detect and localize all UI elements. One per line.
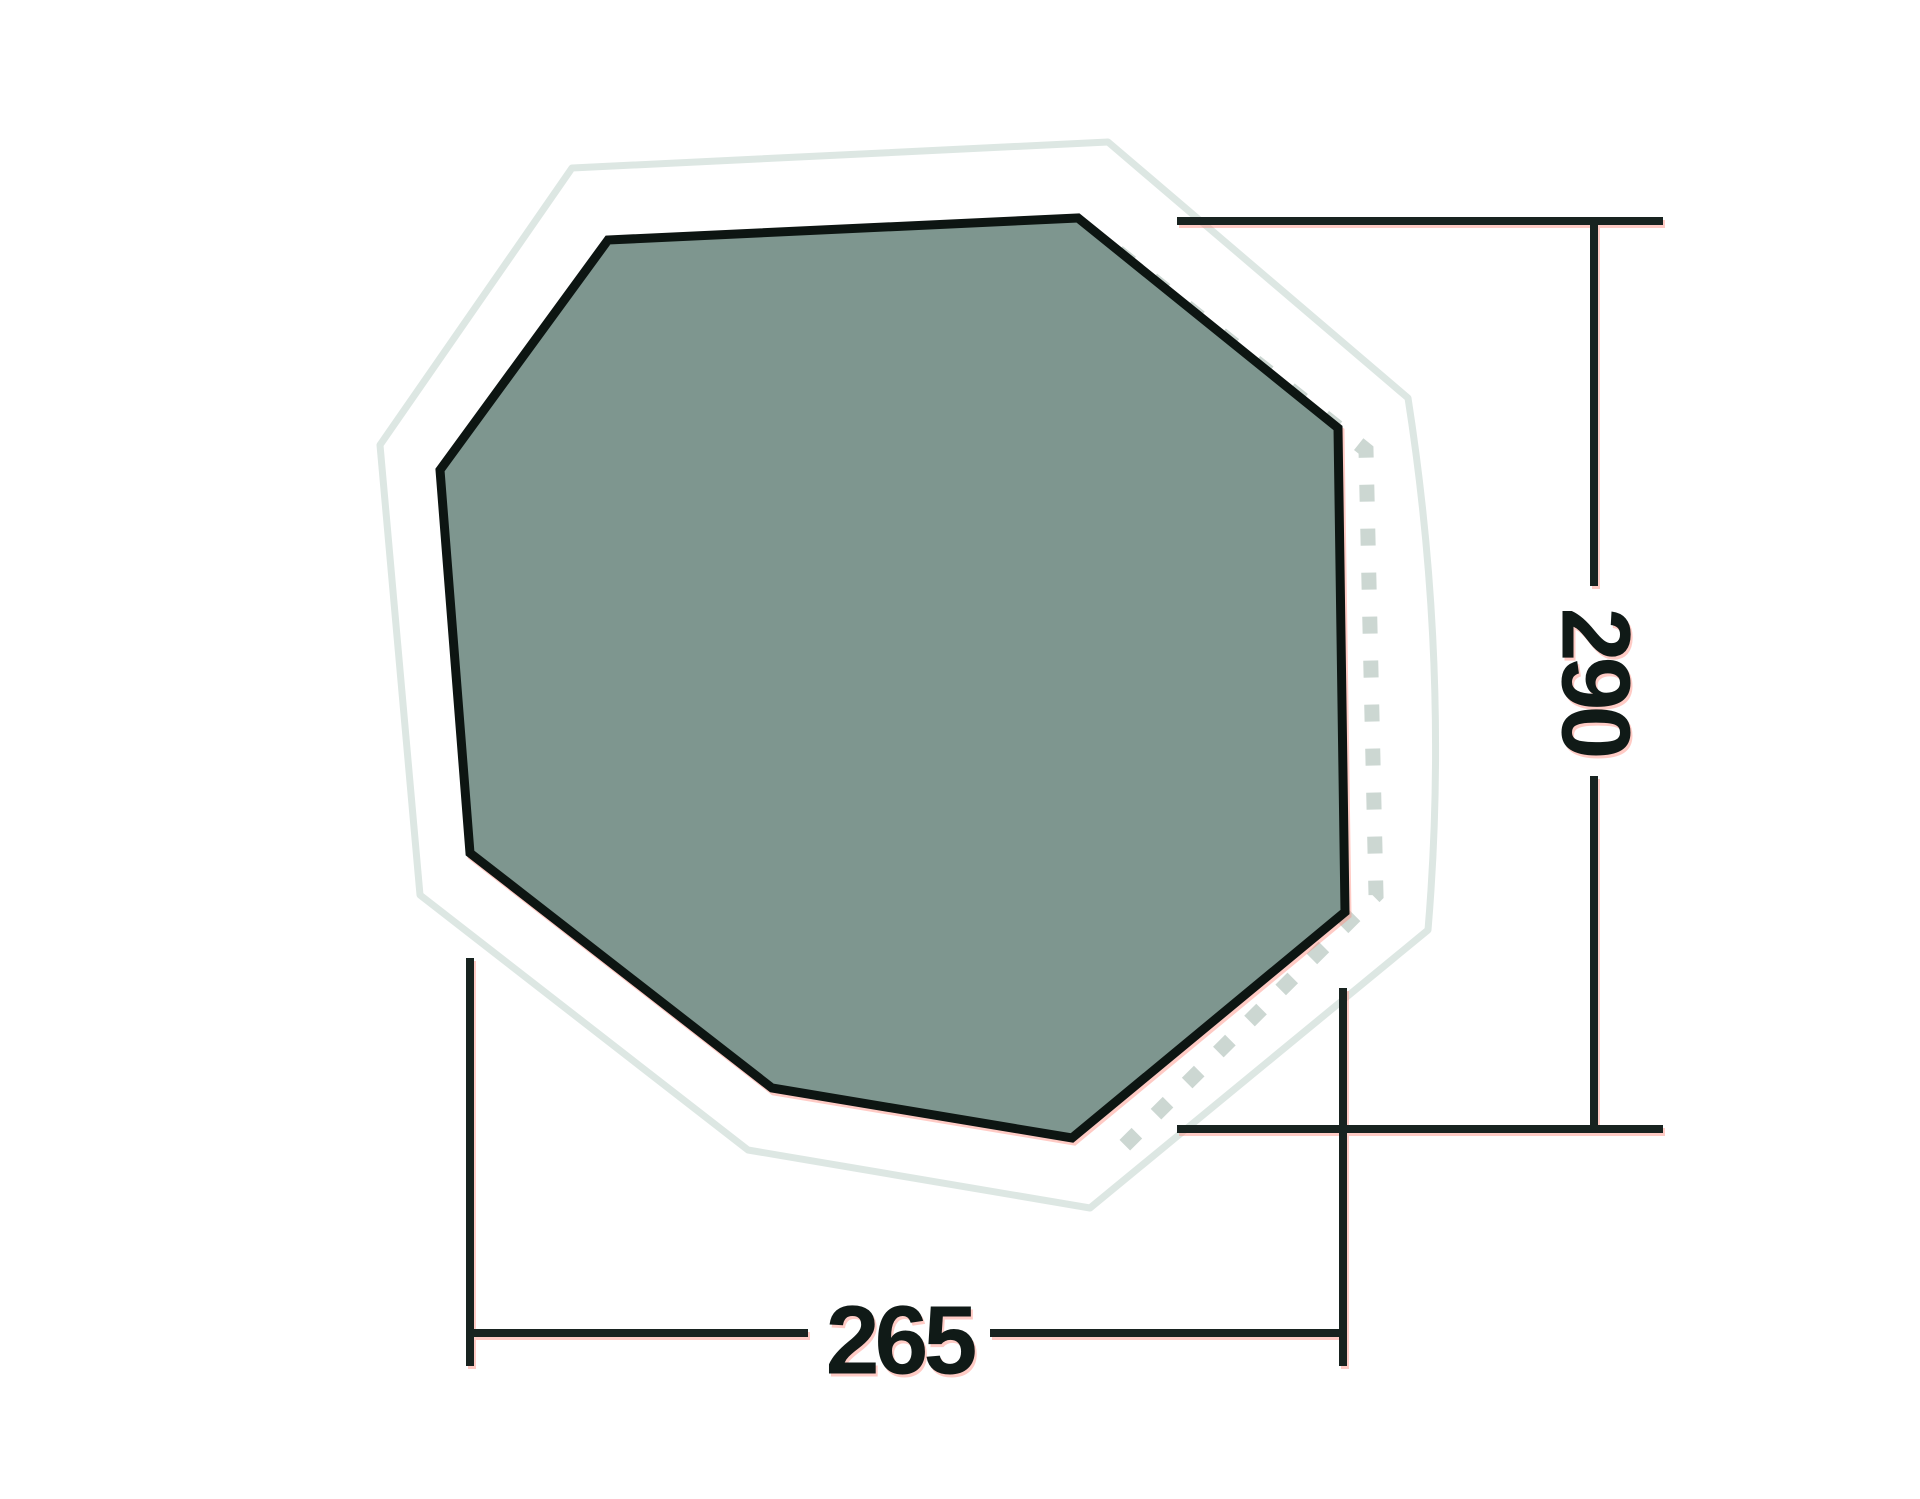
width-dimension-label: 265 xyxy=(826,1286,976,1395)
height-dimension-label: 290 xyxy=(1542,608,1651,756)
footprint-shape xyxy=(440,218,1345,1138)
footprint-diagram: 290 265 xyxy=(0,0,1920,1499)
diagram-ink-layer: 290 265 xyxy=(440,218,1663,1395)
footprint-diagram-page: 290 265 xyxy=(0,0,1920,1499)
